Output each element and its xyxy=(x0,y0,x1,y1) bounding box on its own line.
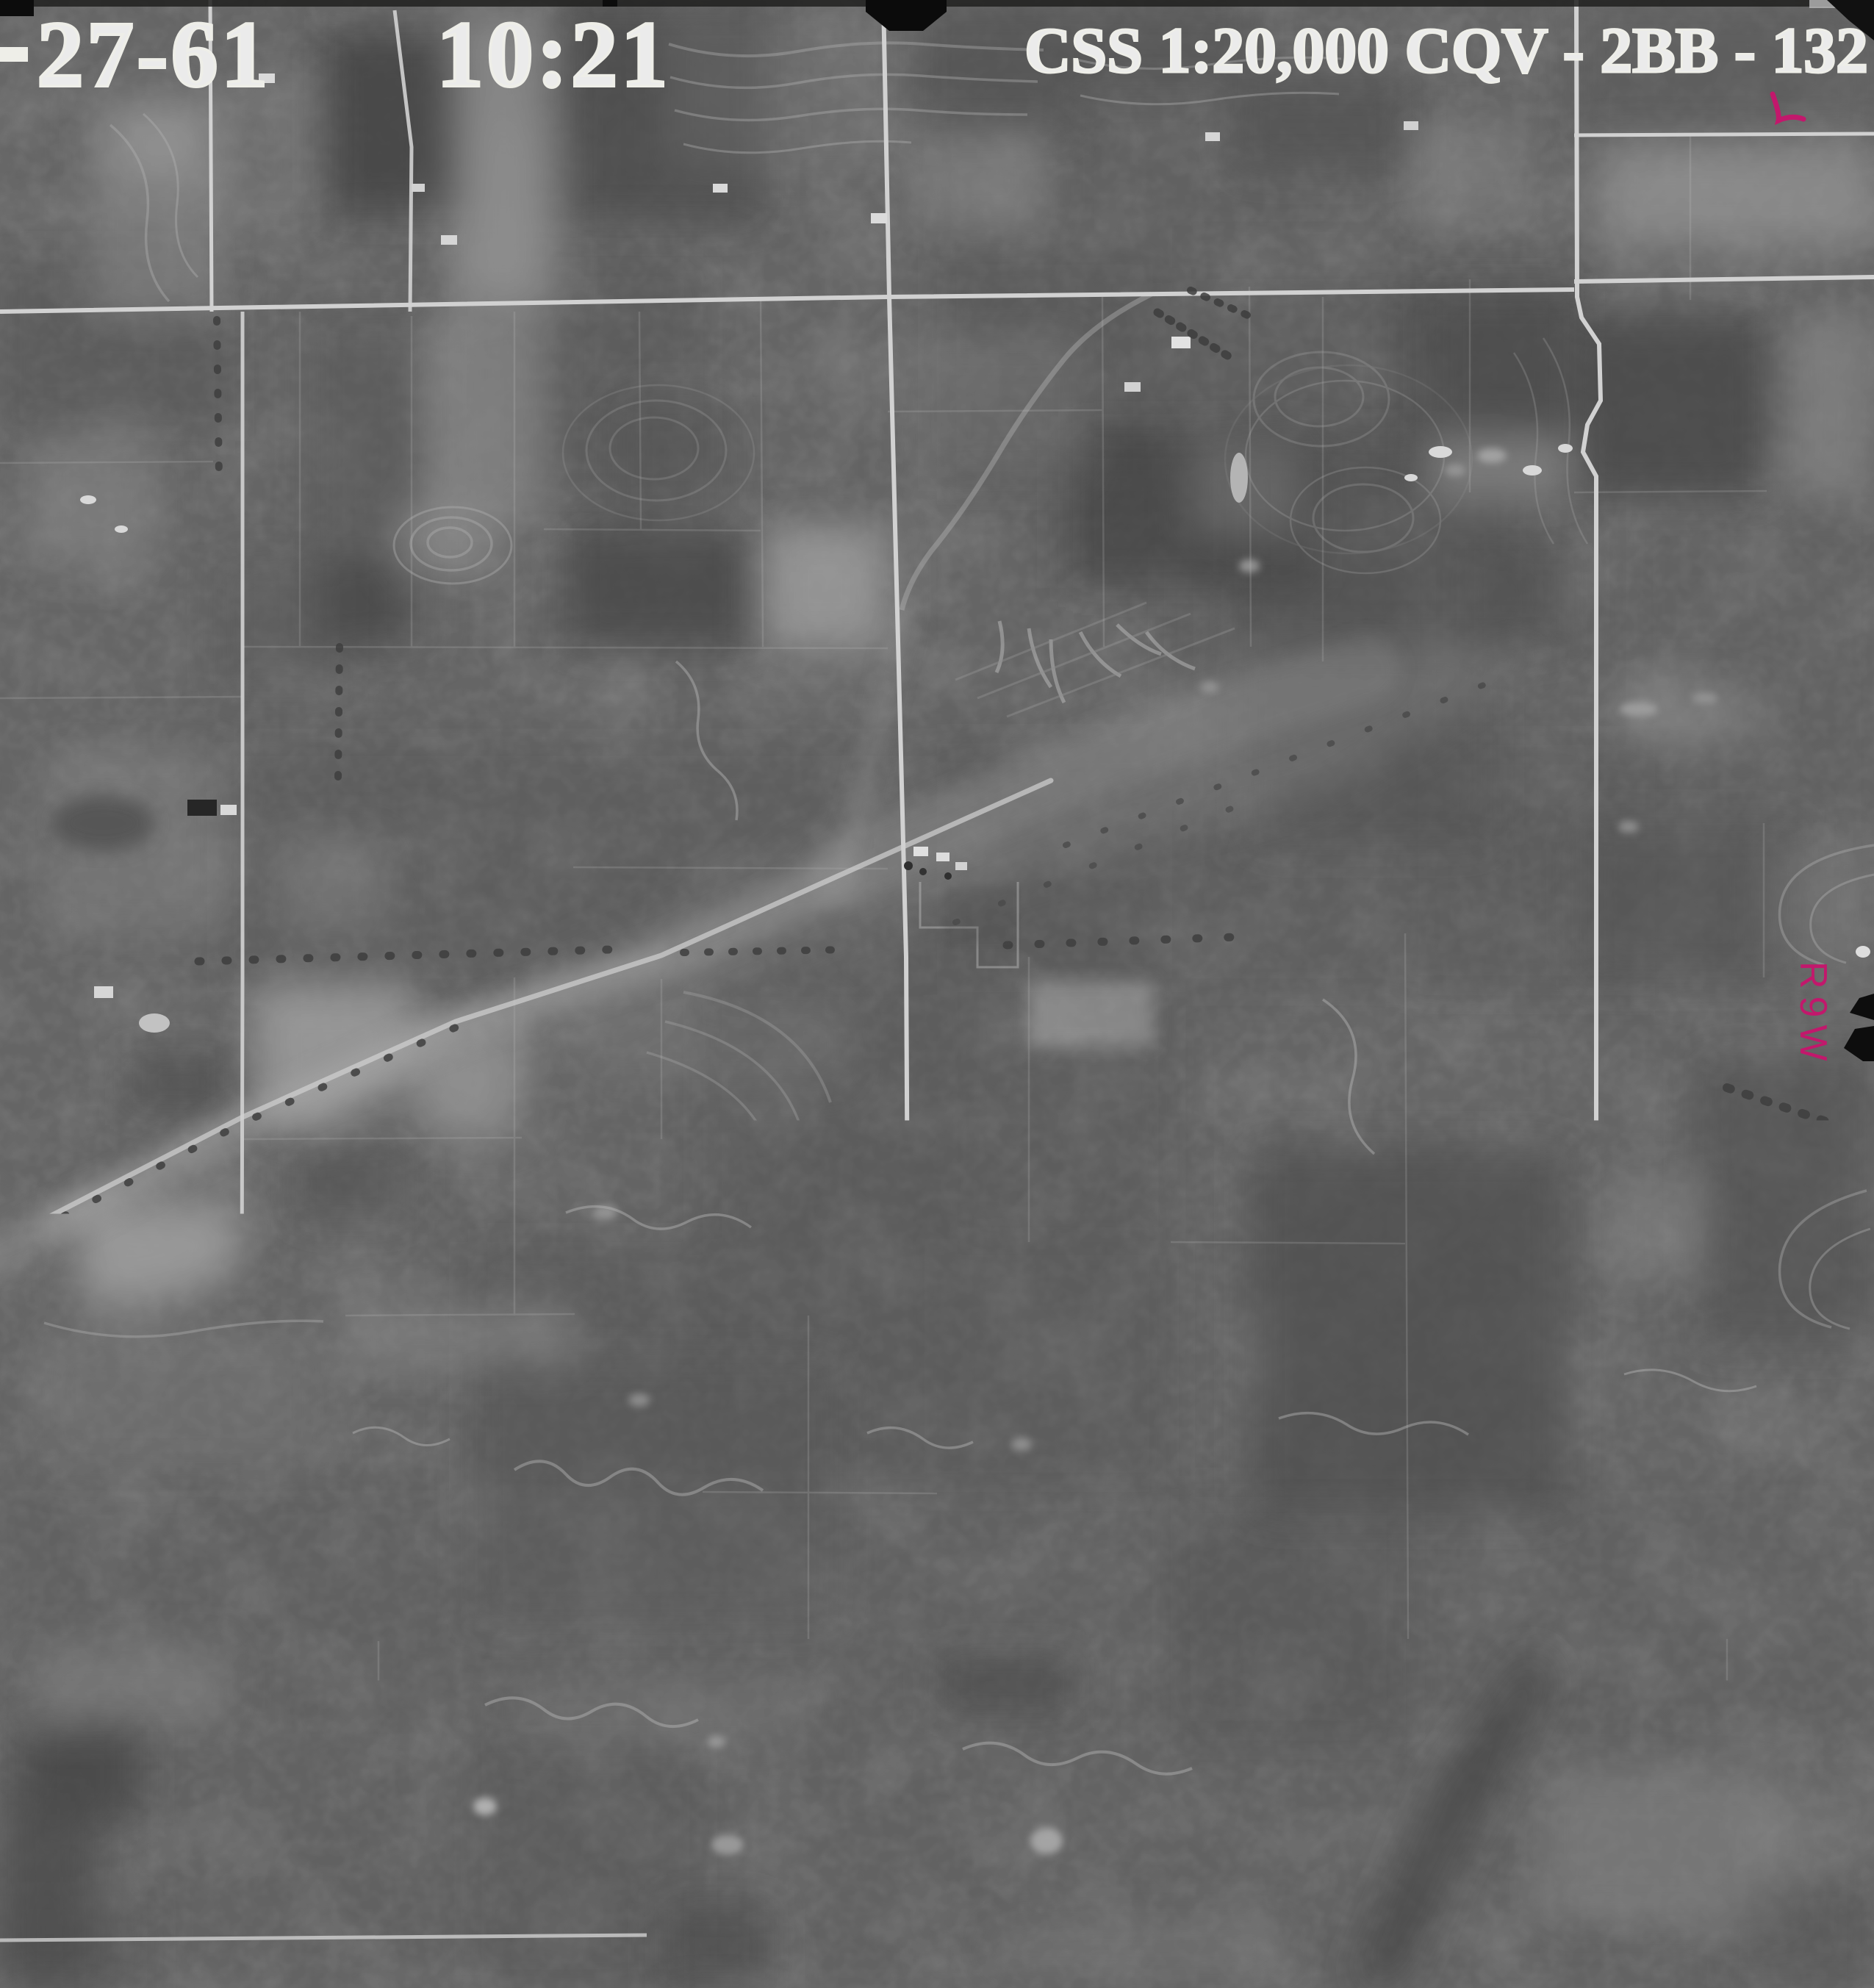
svg-text:R9W: R9W xyxy=(1792,961,1834,1069)
svg-text:10:21: 10:21 xyxy=(437,2,671,107)
svg-text:CSS 1:20,000 CQV - 2BB - 132: CSS 1:20,000 CQV - 2BB - 132 xyxy=(1024,15,1868,87)
svg-text:27-61: 27-61 xyxy=(37,2,271,107)
